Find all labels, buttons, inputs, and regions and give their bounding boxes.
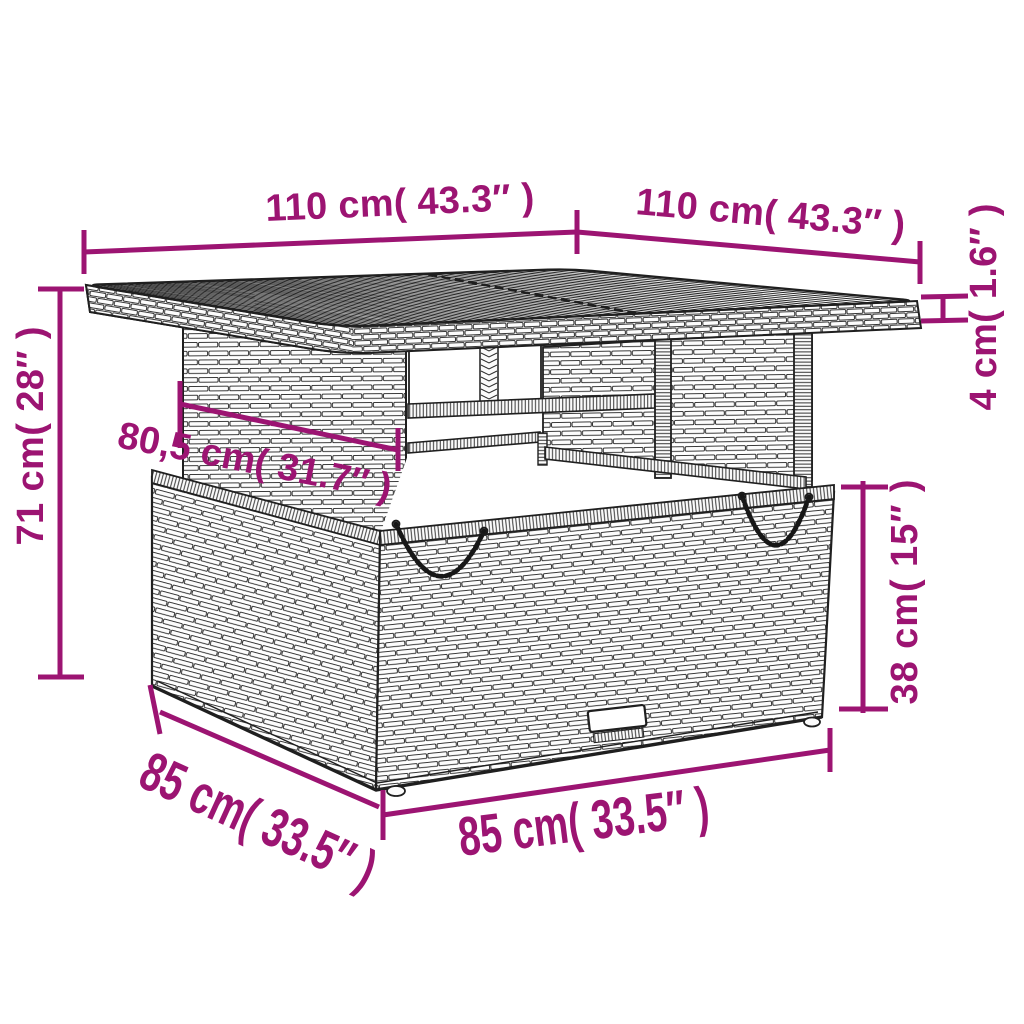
svg-text:38 cm( 15″ ): 38 cm( 15″ ) [884,480,926,705]
svg-text:4 cm( 1.6″ ): 4 cm( 1.6″ ) [963,204,1005,411]
svg-text:71 cm( 28″ ): 71 cm( 28″ ) [10,327,52,546]
